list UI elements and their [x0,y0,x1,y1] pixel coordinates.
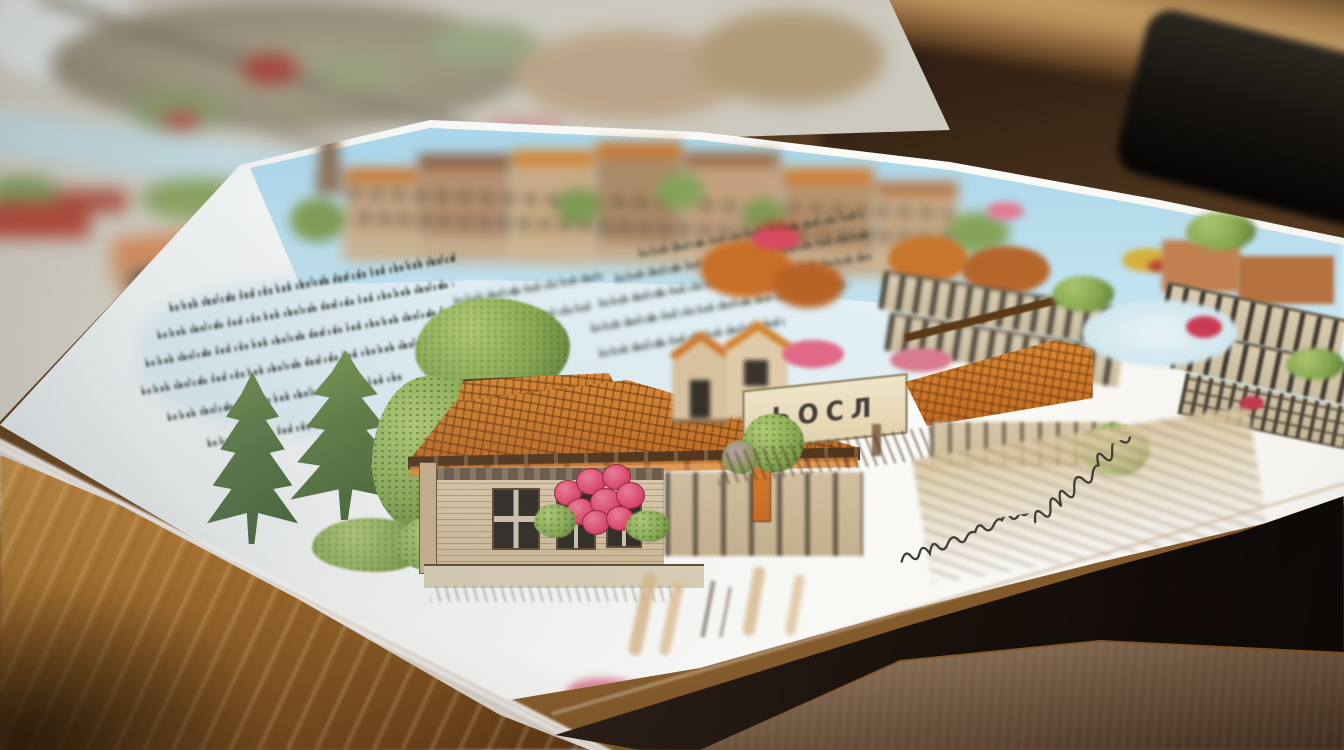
green-blur [1052,276,1114,312]
gable-window [744,360,768,386]
green-blur [556,188,600,224]
gable-door [690,380,710,418]
flower-cluster [782,340,844,368]
flower-cluster [986,202,1024,220]
tan-building-blur [695,10,885,105]
red-roof-row-blur [55,190,127,212]
corner-shadow [0,580,280,750]
green-blur [656,172,704,210]
house-base [424,564,704,588]
flower-leaves [626,510,670,542]
green-blur [315,52,400,92]
photo-stage: ЬОСЛ [0,0,1344,750]
flower-petal [616,482,645,509]
green-blur [290,198,345,242]
flower-cluster [752,228,800,250]
house-corner-post [419,462,437,574]
green-blur [1186,212,1256,250]
red-roof-blur [162,112,200,130]
ink-stroke [701,580,716,638]
ink-stroke [719,586,732,638]
pencil-stroke [742,565,766,636]
house-window [492,488,540,550]
flower-leaves [534,504,576,538]
flower-cluster-large [548,462,658,540]
orange-roof-blur [772,262,844,308]
flower-cluster [890,348,952,372]
red-roof-blur [242,54,298,84]
pencil-stroke [785,574,806,637]
flower-cluster [1186,316,1222,338]
brick-block-blur [1238,256,1334,304]
